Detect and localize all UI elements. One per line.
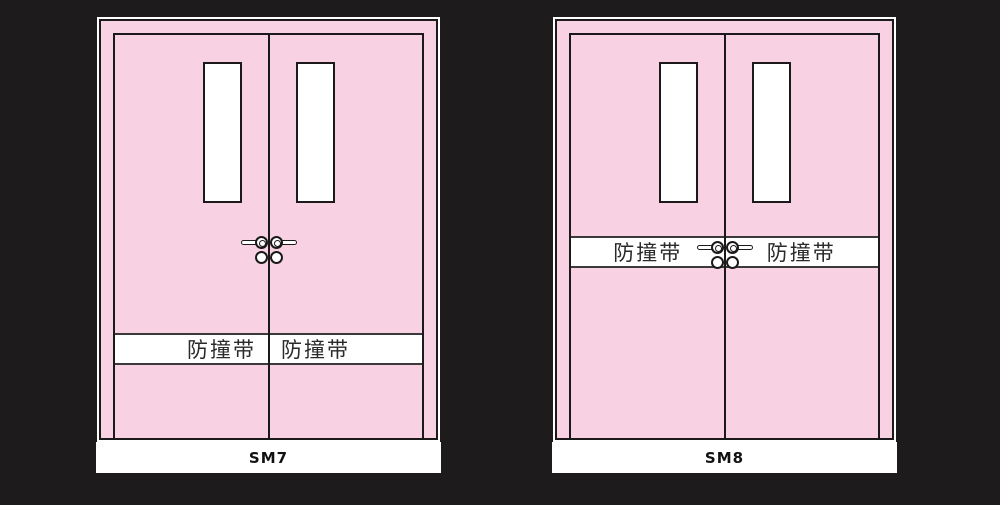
lock-cylinder-right-icon xyxy=(270,251,283,264)
band-label-left: 防撞带 xyxy=(115,335,267,363)
door-outer-edge: 防撞带 防撞带 xyxy=(553,17,896,442)
door-leaf-right xyxy=(269,35,423,438)
model-label-sm7: SM7 xyxy=(96,442,441,473)
vision-panel-right xyxy=(752,62,791,203)
handle-knob-right-icon xyxy=(726,241,739,254)
band-label-right: 防撞带 xyxy=(725,238,879,266)
lock-cylinder-right-icon xyxy=(726,256,739,269)
handle-knob-left-icon xyxy=(255,236,268,249)
door-outer-edge: 防撞带 防撞带 xyxy=(97,17,440,442)
door-figure-sm7: 防撞带 防撞带 SM7 xyxy=(97,17,440,473)
band-label-left: 防撞带 xyxy=(571,238,725,266)
center-meeting-stile xyxy=(268,35,270,438)
door-leaves: 防撞带 防撞带 xyxy=(569,33,880,438)
door-leaf-left xyxy=(115,35,269,438)
vision-panel-right xyxy=(296,62,335,203)
door-frame: 防撞带 防撞带 xyxy=(99,19,438,440)
drawing-canvas: { "colors": { "background": "#1e1b1c", "… xyxy=(0,0,1000,505)
door-leaves: 防撞带 防撞带 xyxy=(113,33,424,438)
vision-panel-left xyxy=(659,62,698,203)
center-meeting-stile xyxy=(724,35,726,438)
door-frame: 防撞带 防撞带 xyxy=(555,19,894,440)
band-label-right: 防撞带 xyxy=(267,335,422,363)
lock-cylinder-left-icon xyxy=(255,251,268,264)
door-figure-sm8: 防撞带 防撞带 SM8 xyxy=(553,17,896,473)
lock-cylinder-left-icon xyxy=(711,256,724,269)
handle-knob-left-icon xyxy=(711,241,724,254)
vision-panel-left xyxy=(203,62,242,203)
model-label-sm8: SM8 xyxy=(552,442,897,473)
handle-knob-right-icon xyxy=(270,236,283,249)
